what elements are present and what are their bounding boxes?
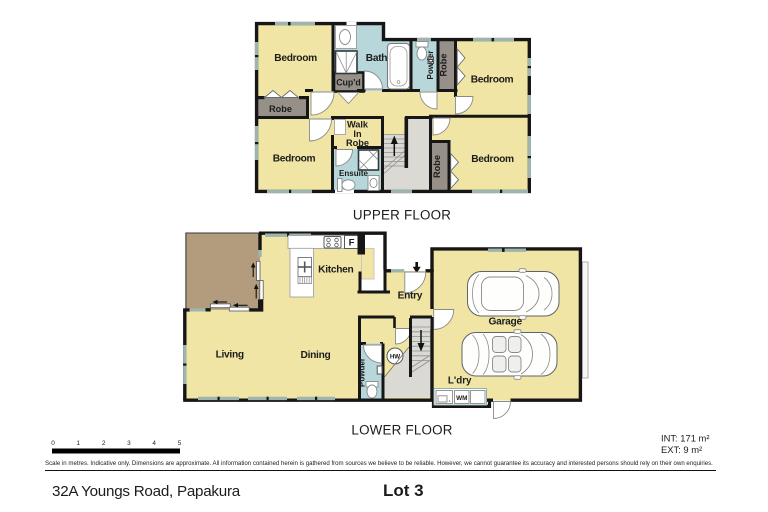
svg-text:Robe: Robe: [346, 138, 369, 148]
svg-text:Living: Living: [216, 350, 244, 361]
svg-text:L'dry: L'dry: [448, 375, 472, 386]
svg-text:Kitchen: Kitchen: [318, 264, 353, 275]
svg-text:Robe: Robe: [269, 104, 292, 114]
svg-text:Powder: Powder: [426, 51, 435, 80]
svg-text:2: 2: [102, 440, 106, 447]
svg-text:Lot 3: Lot 3: [383, 481, 424, 500]
svg-text:0: 0: [51, 440, 55, 447]
svg-text:4: 4: [152, 440, 156, 447]
svg-text:WM: WM: [456, 395, 467, 402]
svg-text:F: F: [349, 238, 355, 249]
svg-text:Bedroom: Bedroom: [471, 154, 514, 165]
svg-text:Garage: Garage: [489, 317, 523, 328]
svg-text:Robe: Robe: [432, 155, 442, 178]
svg-text:INT: 171 m²: INT: 171 m²: [661, 433, 709, 444]
svg-text:Scale in metres. Indicative on: Scale in metres. Indicative only. Dimens…: [45, 460, 713, 467]
svg-text:Dining: Dining: [301, 350, 331, 361]
svg-text:Bedroom: Bedroom: [471, 75, 514, 86]
svg-text:Robe: Robe: [439, 54, 449, 77]
svg-text:Bedroom: Bedroom: [273, 153, 316, 164]
svg-text:5: 5: [178, 440, 182, 447]
svg-text:Cup'd: Cup'd: [336, 78, 361, 88]
svg-text:1: 1: [77, 440, 81, 447]
svg-text:32A Youngs Road, Papakura: 32A Youngs Road, Papakura: [52, 483, 241, 500]
svg-text:EXT: 9 m²: EXT: 9 m²: [661, 444, 702, 455]
svg-text:Bath: Bath: [366, 53, 388, 64]
svg-text:LOWER FLOOR: LOWER FLOOR: [351, 423, 452, 438]
svg-text:UPPER FLOOR: UPPER FLOOR: [353, 208, 451, 223]
svg-text:Entry: Entry: [398, 291, 423, 302]
svg-text:Ensuite: Ensuite: [339, 169, 368, 178]
svg-text:Bedroom: Bedroom: [274, 53, 317, 64]
svg-text:Powder: Powder: [358, 358, 367, 387]
svg-text:3: 3: [127, 440, 131, 447]
